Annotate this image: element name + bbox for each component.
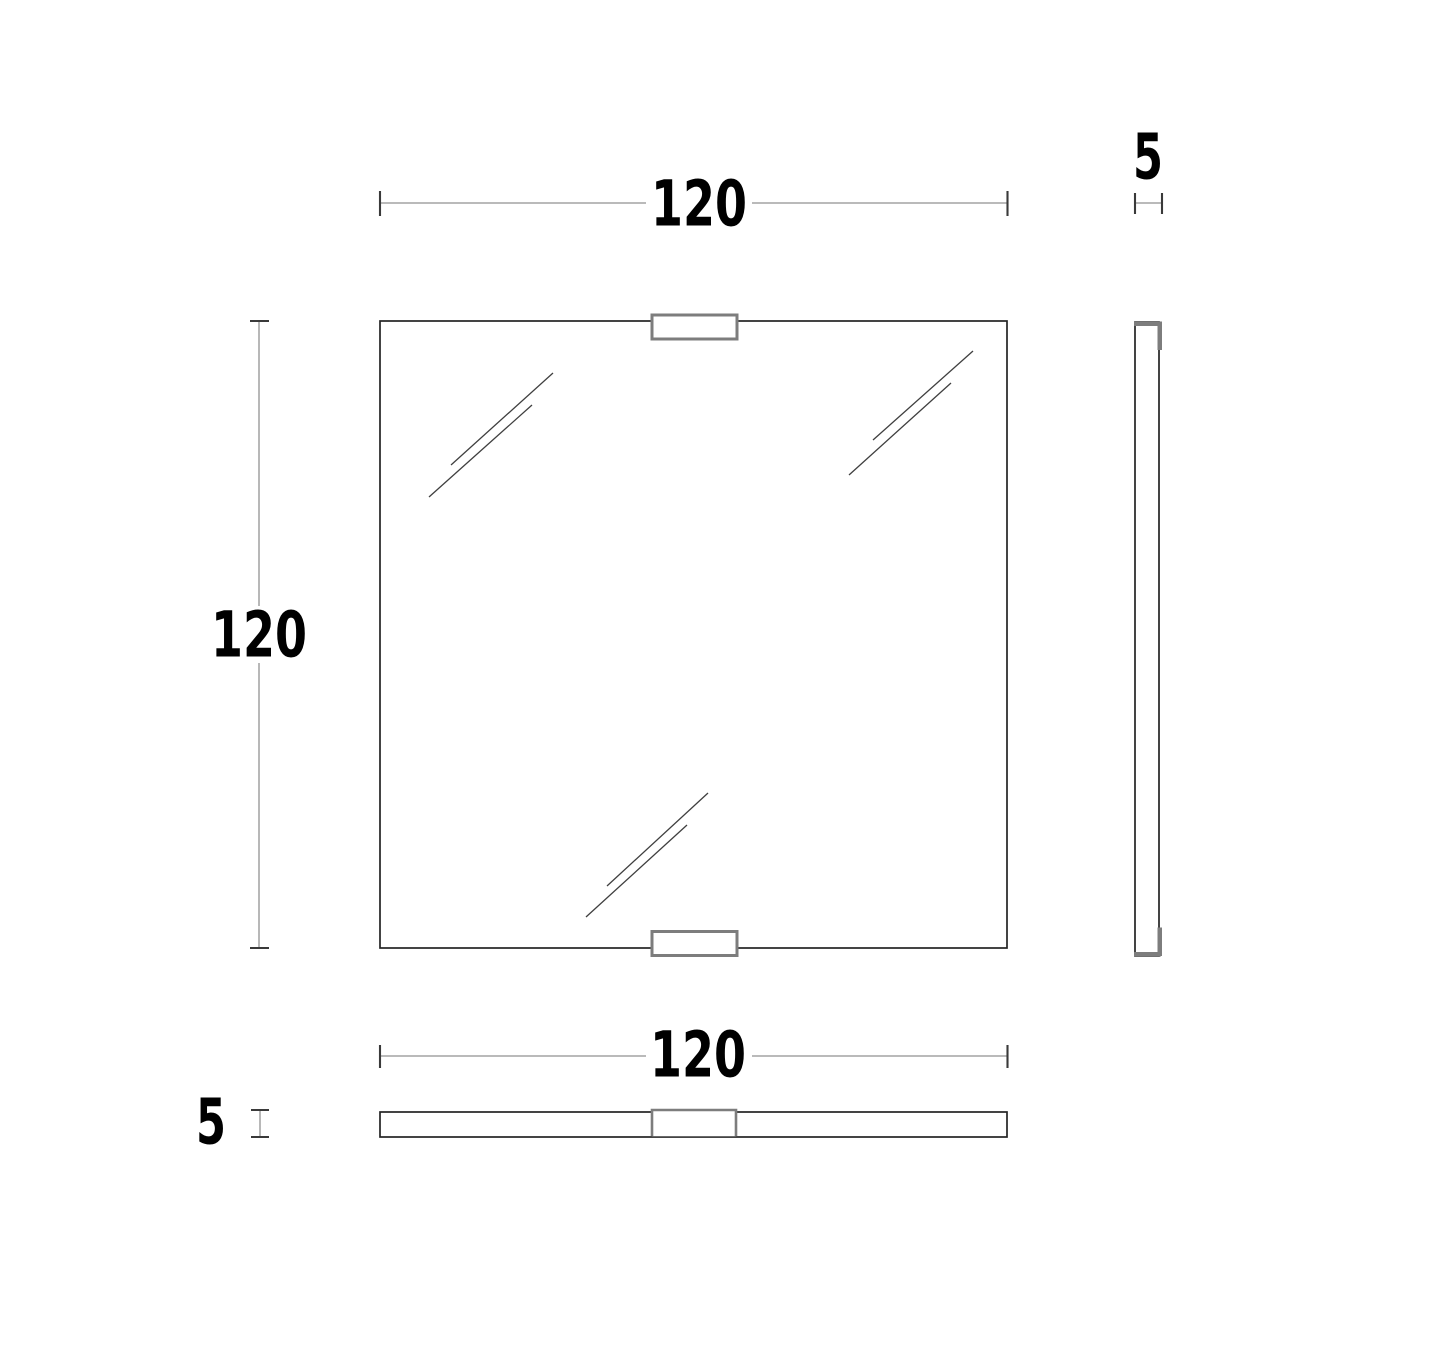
technical-drawing: 120 5 120 bbox=[0, 0, 1450, 1352]
top-view bbox=[380, 1110, 1007, 1137]
dim-front-width: 120 bbox=[380, 168, 1008, 241]
dim-top-width: 120 bbox=[380, 1019, 1008, 1092]
dim-top-width-label: 120 bbox=[650, 1019, 746, 1092]
dim-top-thickness: 5 bbox=[196, 1086, 269, 1159]
side-view-clip-top-cap bbox=[1134, 322, 1161, 327]
front-view-clip-top bbox=[652, 315, 737, 339]
dim-front-height: 120 bbox=[211, 321, 307, 948]
side-view-clip-bottom-cap bbox=[1134, 952, 1161, 957]
side-view-outline bbox=[1135, 322, 1159, 956]
side-view-clip-bottom-lip bbox=[1158, 928, 1163, 957]
top-view-clip bbox=[652, 1110, 736, 1136]
front-view-clip-bottom bbox=[652, 932, 737, 956]
front-view-outline bbox=[380, 321, 1007, 948]
dim-front-width-label: 120 bbox=[651, 168, 747, 241]
drawing-canvas: 120 5 120 bbox=[0, 0, 1450, 1352]
dim-top-thickness-label: 5 bbox=[196, 1086, 226, 1159]
dim-front-height-label: 120 bbox=[211, 599, 307, 672]
front-view bbox=[380, 315, 1007, 956]
dim-side-thickness: 5 bbox=[1133, 121, 1163, 215]
side-view bbox=[1134, 322, 1162, 957]
dim-side-thickness-label: 5 bbox=[1133, 121, 1163, 194]
side-view-clip-top-lip bbox=[1158, 322, 1163, 351]
